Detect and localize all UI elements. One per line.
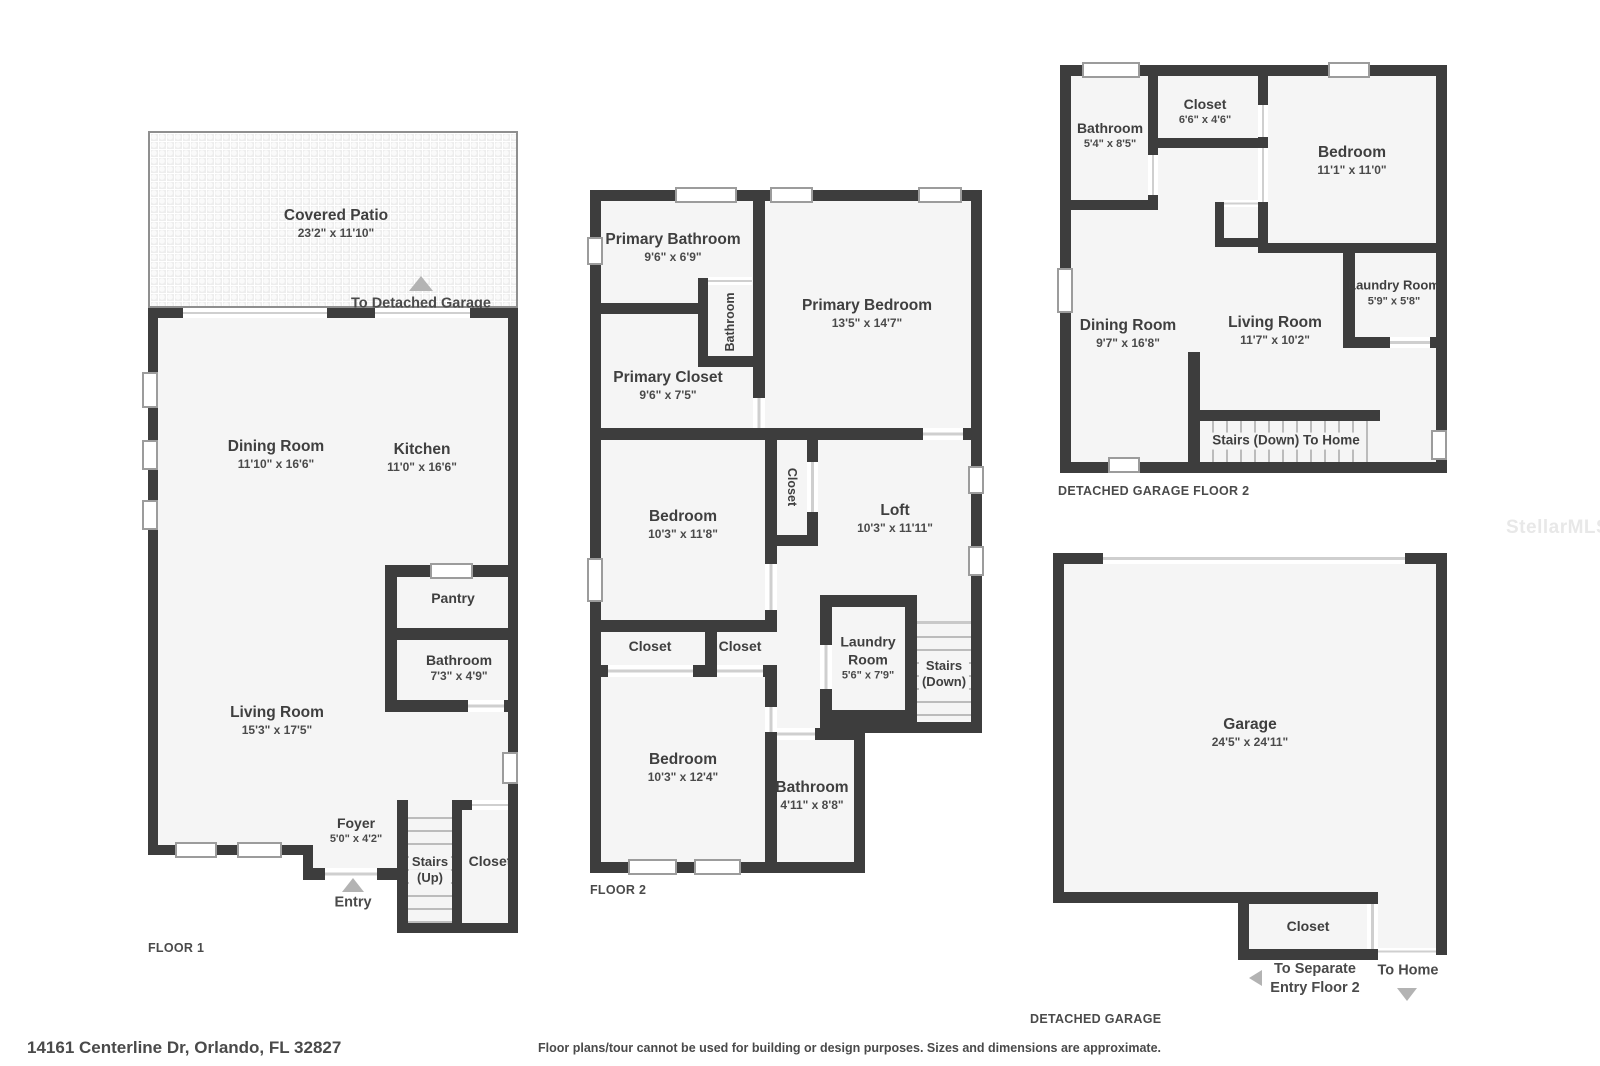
g2-laundry-door-opening xyxy=(1390,337,1430,348)
g2-bathroom-door-opening xyxy=(1148,155,1158,195)
entry-arrow-icon xyxy=(342,878,364,892)
g-closet-label: Closet xyxy=(1287,917,1330,935)
room-name: Foyer xyxy=(330,814,382,832)
f2-bathroom2-door-opening xyxy=(777,728,815,740)
room-name: Kitchen xyxy=(387,440,457,460)
closet-f1-label: Closet xyxy=(469,852,512,870)
room-name: Pantry xyxy=(431,589,475,607)
room-name: Primary Closet xyxy=(613,368,722,388)
f2-window-top-1 xyxy=(675,187,737,203)
f2-loftcloset-wall-left xyxy=(765,440,777,535)
room-dims: 5'4" x 8'5" xyxy=(1077,137,1143,151)
room-name: Closet xyxy=(629,637,672,655)
f1-window-left-2 xyxy=(142,440,158,470)
g2-stairs-wall-top xyxy=(1193,410,1380,421)
g2-nook-door-opening xyxy=(1224,200,1258,207)
f2-loftcloset-wall-right-a xyxy=(807,440,818,462)
stairs-line1: Stairs xyxy=(919,658,969,674)
room-name: Closet xyxy=(469,852,512,870)
f2-bedroom2-door-opening xyxy=(765,707,777,732)
f1-window-bottom-1 xyxy=(175,842,217,858)
room-name: Loft xyxy=(857,501,933,521)
room-name: Dining Room xyxy=(1080,316,1176,336)
f2-bathroom2-wall-top xyxy=(815,728,854,740)
f2-stairs-top-line xyxy=(917,621,971,624)
closet2-label: Closet xyxy=(719,637,762,655)
garage-caption: DETACHED GARAGE xyxy=(1030,1012,1161,1026)
room-dims: 6'6" x 4'6" xyxy=(1179,113,1231,127)
pantry-label: Pantry xyxy=(431,589,475,607)
room-dims: 9'7" x 16'8" xyxy=(1080,336,1176,352)
garage-floor2-caption: DETACHED GARAGE FLOOR 2 xyxy=(1058,484,1249,498)
room-dims: 5'6" x 7'9" xyxy=(826,669,910,683)
loft-closet-label: Closet xyxy=(785,468,799,506)
g2-laundry-label: Laundry Room 5'9" x 5'8" xyxy=(1348,277,1440,308)
room-name: Primary Bedroom xyxy=(802,296,932,316)
bathroom2-label: Bathroom 4'11" x 8'8" xyxy=(775,778,848,814)
g-wall-right-ext xyxy=(1436,892,1447,955)
room-name: Bedroom xyxy=(648,507,718,527)
f2-closet1-door-opening xyxy=(608,665,693,677)
garage-door-opening xyxy=(1103,553,1405,564)
room-name: Laundry Room xyxy=(1348,277,1440,294)
f2-hallbath-door-opening xyxy=(708,277,752,285)
room-dims: 10'3" x 11'8" xyxy=(648,527,718,543)
room-dims: 11'1" x 11'0" xyxy=(1317,163,1386,179)
room-name: Garage xyxy=(1212,715,1288,735)
f1-wall-right xyxy=(508,308,518,933)
g2-window-right-1 xyxy=(1431,430,1447,460)
room-name: Closet xyxy=(1179,95,1231,113)
f2-window-bottom-2 xyxy=(694,859,741,875)
g2-closet-door-opening xyxy=(1258,105,1268,137)
g2-closet-wall-bottom xyxy=(1148,138,1268,148)
room-dims: 11'7" x 10'2" xyxy=(1228,333,1322,349)
f1-pantry-window xyxy=(430,563,473,579)
f1-wall-bottom-block xyxy=(397,923,518,933)
room-dims: 10'3" x 11'11" xyxy=(857,521,933,537)
floor2-caption: FLOOR 2 xyxy=(590,883,646,897)
stairs-text: Stairs (Down) To Home xyxy=(1209,433,1363,450)
f1-stairs-wall-left xyxy=(397,800,408,933)
room-dims: 13'5" x 14'7" xyxy=(802,316,932,332)
stairs-line2: (Down) xyxy=(919,674,969,690)
f2-loft-opening xyxy=(923,428,963,440)
room-name: Bathroom xyxy=(426,651,492,669)
floor1-body xyxy=(148,308,518,855)
to-home-arrow-icon xyxy=(1397,988,1417,1001)
stairs-line1: Stairs xyxy=(409,854,451,870)
primary-bedroom-label: Primary Bedroom 13'5" x 14'7" xyxy=(802,296,932,332)
covered-patio-label: Covered Patio 23'2" x 11'10" xyxy=(284,206,388,242)
f1-patio-opening-1 xyxy=(183,308,327,318)
f1-wall-bottom-left xyxy=(148,845,313,855)
room-dims: 23'2" x 11'10" xyxy=(284,226,388,242)
f2-window-bottom-1 xyxy=(628,859,677,875)
room-name: Bedroom xyxy=(648,750,718,770)
stellar-mls-watermark: StellarMLS xyxy=(1506,517,1600,539)
bathroom1-label: Bathroom 7'3" x 4'9" xyxy=(426,651,492,685)
laundry-room-f2-label: Laundry Room 5'6" x 7'9" xyxy=(826,633,910,684)
g2-window-left-1 xyxy=(1057,268,1073,313)
room-dims: 11'0" x 16'6" xyxy=(387,460,457,476)
room-dims: 24'5" x 24'11" xyxy=(1212,735,1288,751)
entry-label: Entry xyxy=(334,894,371,913)
f2-window-right-1 xyxy=(968,466,984,494)
stairs-line2: (Up) xyxy=(409,870,451,886)
disclaimer-text: Floor plans/tour cannot be used for buil… xyxy=(538,1041,1161,1055)
g2-living-label: Living Room 11'7" x 10'2" xyxy=(1228,313,1322,349)
to-separate-entry-arrow-icon xyxy=(1249,970,1262,986)
f1-bathroom-door-opening xyxy=(468,700,504,712)
room-dims: 9'6" x 6'9" xyxy=(605,250,740,266)
room-dims: 10'3" x 12'4" xyxy=(648,770,718,786)
room-name: Dining Room xyxy=(228,437,324,457)
to-detached-garage-arrow-icon xyxy=(409,276,433,291)
g2-window-top-2 xyxy=(1328,62,1370,78)
stairs-down-f2-label: Stairs (Down) xyxy=(919,658,969,691)
stairs-up-label: Stairs (Up) xyxy=(409,854,451,887)
g2-dining-label: Dining Room 9'7" x 16'8" xyxy=(1080,316,1176,352)
f1-window-left-1 xyxy=(142,372,158,408)
g2-closet-bedroom-divider-b xyxy=(1258,137,1268,148)
room-name: Primary Bathroom xyxy=(605,230,740,250)
g2-bathroom-wall-bottom xyxy=(1060,200,1158,210)
room-dims: 5'9" x 5'8" xyxy=(1348,294,1440,308)
garage-label: Garage 24'5" x 24'11" xyxy=(1212,715,1288,751)
f1-window-left-3 xyxy=(142,500,158,530)
room-dims: 11'10" x 16'6" xyxy=(228,457,324,473)
room-name: Closet xyxy=(719,637,762,655)
g2-window-top-1 xyxy=(1082,62,1140,78)
hall-bathroom-label: Bathroom xyxy=(723,292,737,351)
g2-window-bottom-1 xyxy=(1108,457,1140,473)
dining-room-label: Dining Room 11'10" x 16'6" xyxy=(228,437,324,473)
f2-bedroom1-divider-a xyxy=(765,546,777,564)
f2-wall-left xyxy=(590,190,601,873)
f1-pantry-bathroom-wall xyxy=(385,628,518,640)
room-name: Laundry Room xyxy=(826,633,910,669)
f2-window-top-3 xyxy=(918,187,962,203)
f2-loftcloset-door-opening xyxy=(807,462,818,512)
f2-primary-divider-a xyxy=(753,190,765,398)
f2-bathroom2-wall-right xyxy=(854,733,865,873)
f2-primary-door-opening xyxy=(753,398,765,428)
room-name: Bathroom xyxy=(775,778,848,798)
f2-bedroom1-door-opening xyxy=(765,564,777,610)
f2-loftcloset-wall-bottom xyxy=(765,535,818,546)
f2-wall-right xyxy=(971,190,982,733)
room-dims: 15'3" x 17'5" xyxy=(230,723,324,739)
f1-window-right-1 xyxy=(502,752,518,784)
loft-label: Loft 10'3" x 11'11" xyxy=(857,501,933,537)
primary-bathroom-label: Primary Bathroom 9'6" x 6'9" xyxy=(605,230,740,266)
f1-patio-opening-2 xyxy=(375,308,470,318)
to-separate-entry-label: To Separate Entry Floor 2 xyxy=(1270,960,1359,998)
floor1-caption: FLOOR 1 xyxy=(148,941,204,955)
f2-window-right-2 xyxy=(968,546,984,576)
g-corridor-erase xyxy=(1378,892,1436,903)
to-home-label: To Home xyxy=(1378,962,1439,981)
living-room-label: Living Room 15'3" x 17'5" xyxy=(230,703,324,739)
dir-line2: Entry Floor 2 xyxy=(1270,979,1359,998)
f2-window-left-1 xyxy=(587,237,603,265)
room-dims: 7'3" x 4'9" xyxy=(426,669,492,685)
property-address: 14161 Centerline Dr, Orlando, FL 32827 xyxy=(27,1038,341,1058)
f1-stairs-closet-wall xyxy=(452,800,462,933)
g2-closet-label: Closet 6'6" x 4'6" xyxy=(1179,95,1231,127)
g-corridor xyxy=(1378,903,1436,950)
f2-bedroom1-wall-bottom xyxy=(590,620,777,632)
room-name: Bathroom xyxy=(1077,119,1143,137)
g2-bedroom-door-opening xyxy=(1258,148,1268,202)
room-name: Living Room xyxy=(230,703,324,723)
kitchen-label: Kitchen 11'0" x 16'6" xyxy=(387,440,457,476)
f2-window-top-2 xyxy=(770,187,813,203)
f2-closet2-door-opening xyxy=(717,665,763,677)
f2-bedroom2-divider-a xyxy=(765,677,777,707)
f2-primary-bath-wall-bottom xyxy=(590,303,702,314)
g-to-home-threshold xyxy=(1378,948,1436,955)
room-dims: 9'6" x 7'5" xyxy=(613,388,722,404)
bedroom1-label: Bedroom 10'3" x 11'8" xyxy=(648,507,718,543)
foyer-label: Foyer 5'0" x 4'2" xyxy=(330,814,382,846)
f2-window-left-2 xyxy=(587,558,603,602)
primary-closet-label: Primary Closet 9'6" x 7'5" xyxy=(613,368,722,404)
floorplan-canvas: Covered Patio 23'2" x 11'10" To Detached… xyxy=(0,0,1600,1066)
dir-line1: To Separate xyxy=(1270,960,1359,979)
f2-hallbath-wall-left xyxy=(698,278,708,367)
g2-bathroom-label: Bathroom 5'4" x 8'5" xyxy=(1077,119,1143,151)
bedroom2-label: Bedroom 10'3" x 12'4" xyxy=(648,750,718,786)
room-dims: 5'0" x 4'2" xyxy=(330,832,382,846)
g2-bedroom-label: Bedroom 11'1" x 11'0" xyxy=(1317,143,1386,179)
closet1-label: Closet xyxy=(629,637,672,655)
room-name: Covered Patio xyxy=(284,206,388,226)
room-name: Living Room xyxy=(1228,313,1322,333)
f2-loftcloset-wall-right-b xyxy=(807,512,818,535)
room-name: Closet xyxy=(1287,917,1330,935)
room-dims: 4'11" x 8'8" xyxy=(775,798,848,814)
f1-window-bottom-2 xyxy=(237,842,282,858)
f1-closet-door-opening xyxy=(472,800,508,810)
room-name: Bedroom xyxy=(1317,143,1386,163)
g2-stairs-label: Stairs (Down) To Home xyxy=(1209,433,1363,450)
g-closet-door-opening xyxy=(1367,904,1378,949)
g2-closet-bedroom-divider-a xyxy=(1258,65,1268,105)
